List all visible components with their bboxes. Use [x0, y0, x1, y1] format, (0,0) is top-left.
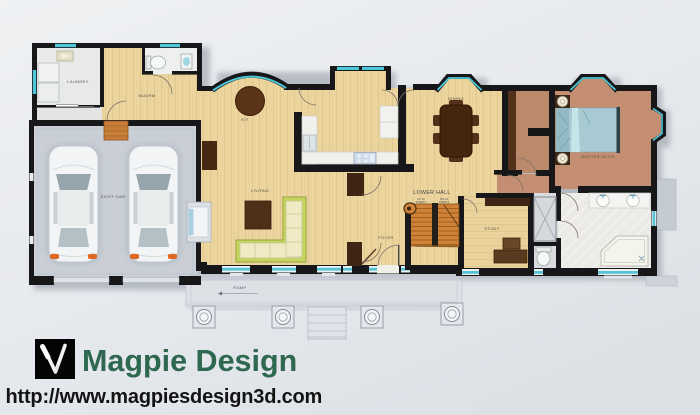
svg-text:Magpie Design: Magpie Design — [82, 344, 297, 378]
svg-text:MASTER SUITE: MASTER SUITE — [581, 154, 615, 159]
svg-text:LIV/FAM: LIV/FAM — [251, 188, 269, 193]
svg-text:DINING: DINING — [448, 96, 464, 101]
svg-text:MUDRM: MUDRM — [138, 93, 155, 98]
svg-text:FOYER: FOYER — [378, 235, 394, 240]
svg-text:KIT: KIT — [241, 117, 248, 122]
svg-text:STUDY: STUDY — [484, 226, 499, 231]
svg-text:http://www.magpiesdesign3d.com: http://www.magpiesdesign3d.com — [6, 386, 323, 408]
svg-text:RAMP: RAMP — [233, 285, 246, 290]
svg-text:RISERS: RISERS — [439, 200, 450, 204]
svg-text:LAUNDRY: LAUNDRY — [67, 79, 89, 84]
svg-text:RISERS: RISERS — [416, 200, 427, 204]
svg-text:EXIST GAR: EXIST GAR — [101, 194, 125, 199]
svg-text:LOWER HALL: LOWER HALL — [413, 190, 450, 196]
